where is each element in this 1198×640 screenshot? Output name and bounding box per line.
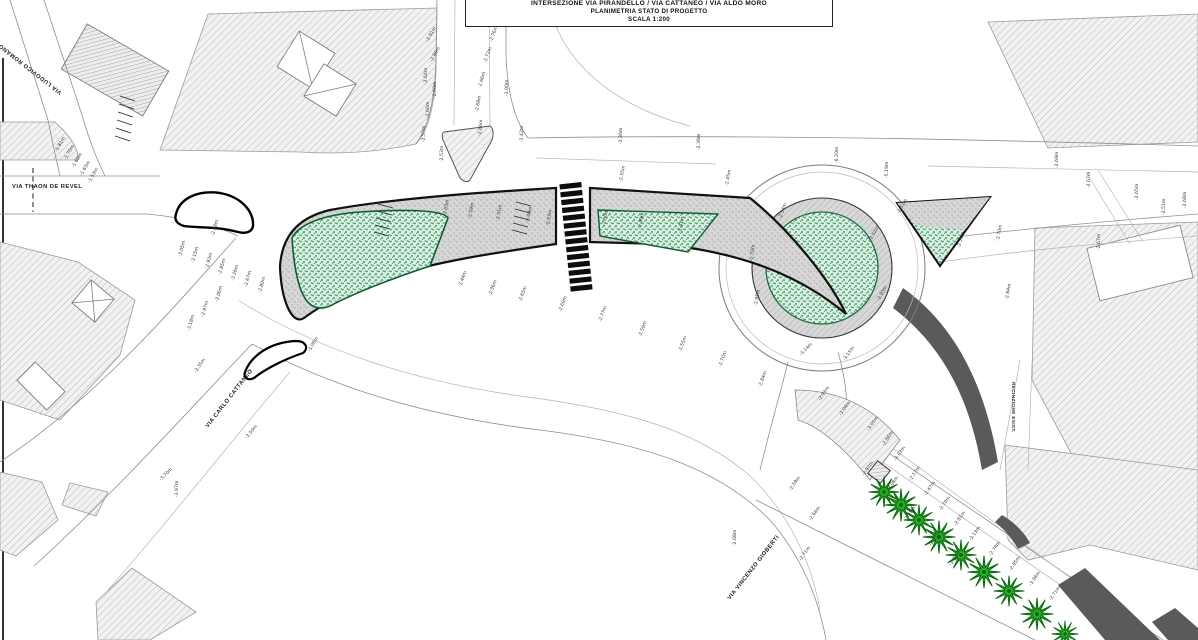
elevation-label: -2.71m	[798, 545, 813, 562]
elevation-label: -2.67m	[1096, 233, 1102, 250]
elevation-label: -2.84m	[1004, 283, 1013, 301]
wall-strip	[1152, 608, 1198, 640]
elevation-label: -2.55m	[618, 165, 627, 183]
elevation-label: -2.66m	[477, 71, 487, 89]
elevation-label: -3.26m	[230, 264, 240, 282]
island-teardrop-b	[245, 341, 307, 379]
elevation-label: -3.50m	[244, 423, 259, 440]
elevation-label: -3.18m	[186, 314, 196, 332]
elevation-label: -2.77m	[597, 305, 608, 323]
elevation-label: -2.95m	[1008, 555, 1023, 572]
elevation-label: -2.67m	[1086, 171, 1092, 188]
island-triangle-north	[442, 126, 493, 182]
elevation-label: -2.97m	[200, 300, 210, 318]
elevation-label: -2.65m	[517, 285, 528, 303]
elevation-label: -3.00m	[504, 79, 510, 96]
elevation-label: -2.65m	[1134, 183, 1140, 200]
zebra-stripe	[565, 237, 587, 244]
zebra-stripe	[561, 198, 583, 205]
elevation-label: -2.74m	[988, 540, 1003, 557]
elevation-label: -2.67m	[243, 270, 253, 288]
roundabout	[719, 165, 925, 371]
fence-label: RECINZIONE ESIST.	[1010, 382, 1016, 433]
elevation-label: -2.59m	[788, 475, 803, 492]
title-line-1: INTERSEZIONE VIA PIRANDELLO / VIA CATTAN…	[471, 0, 826, 8]
elevation-label: -2.76m	[488, 25, 499, 43]
elevation-label: -2.38m	[696, 133, 702, 150]
elevation-label: -2.59m	[637, 320, 648, 338]
road-line	[108, 372, 290, 590]
elevation-label: -2.66m	[425, 101, 431, 118]
road-line	[238, 300, 820, 610]
elevation-label: -2.60m	[432, 81, 438, 98]
elevation-label: -3.97m	[174, 480, 180, 497]
zebra-stripe	[564, 229, 586, 236]
wall-strip	[893, 288, 998, 470]
elevation-label: -3.15m	[842, 345, 857, 362]
zebra-stripe	[566, 245, 588, 252]
road-line	[252, 344, 826, 640]
tree-icon	[1052, 621, 1078, 640]
zebra-stripe	[567, 253, 589, 260]
elevation-label: -3.06m	[1028, 570, 1043, 587]
median-west-green	[292, 210, 448, 308]
road-line	[454, 0, 455, 125]
zebra-stripe	[562, 206, 584, 213]
elevation-label: -2.70m	[717, 350, 728, 368]
tree-icon	[1021, 598, 1053, 630]
road-line	[928, 166, 1198, 172]
elevation-label: -3.14m	[798, 341, 814, 357]
elevation-label: -1.53m	[87, 166, 101, 184]
title-block: INTERSEZIONE VIA PIRANDELLO / VIA CATTAN…	[465, 0, 833, 27]
elevation-label: -2.84m	[757, 370, 768, 388]
elevation-label: -1.63m	[79, 159, 93, 177]
elevation-label: -2.42m	[519, 125, 525, 142]
road-line	[536, 158, 716, 164]
elevation-label: -2.69m	[557, 295, 568, 313]
elevation-label: -2.36m	[618, 127, 624, 144]
elevation-label: -2.85m	[217, 258, 227, 276]
elevation-label: -2.64m	[423, 67, 429, 84]
elevation-label: -3.13m	[968, 525, 983, 542]
elevation-label: -2.36m	[487, 279, 498, 297]
parcel-sw-b	[62, 483, 108, 516]
elevation-label: -3.35m	[193, 357, 208, 374]
plan-drawing: -1.81m-1.70m-1.68m-1.63m-1.53m-2.91m-2.8…	[0, 0, 1198, 640]
zebra-stripe	[569, 276, 591, 283]
parcel-sw-c	[96, 568, 196, 640]
elevation-label: -2.93m	[204, 252, 214, 270]
tree-icon	[968, 556, 1000, 588]
plan-canvas: -1.81m-1.70m-1.68m-1.63m-1.53m-2.91m-2.8…	[0, 0, 1198, 640]
elevation-label: -5.19m	[884, 161, 890, 178]
elevation-label: -3.06m	[214, 285, 224, 303]
elevation-label: -3.03m	[893, 445, 908, 462]
elevation-label: -2.68m	[732, 529, 738, 546]
elevation-label: -3.70m	[158, 466, 174, 482]
zebra-stripe	[568, 261, 590, 268]
elevation-label: -2.66m	[808, 505, 823, 522]
zebra-stripe	[563, 213, 585, 220]
elevation-label: -2.72m	[482, 46, 493, 64]
elevation-label: -6.20m	[834, 146, 840, 163]
street-label: VIA THAON DE REVEL	[12, 184, 82, 190]
elevation-label: -2.44m	[457, 270, 468, 288]
elevation-label: -2.68m	[474, 95, 483, 113]
elevation-label: -2.70m	[938, 495, 953, 512]
zebra-stripe	[560, 190, 582, 197]
elevation-label: -2.57m	[421, 125, 427, 142]
street-label: VIA LUDOVICO ROMANO	[0, 42, 63, 95]
street-label: VIA CARLO CATTANEO	[205, 368, 255, 429]
elevation-label: -2.53m	[439, 145, 445, 162]
elevation-label: -3.15m	[190, 246, 200, 264]
parcel-bottom-left	[0, 242, 135, 420]
tree-icon	[994, 576, 1024, 606]
elevation-label: -2.80m	[257, 276, 267, 294]
elevation-label: -2.69m	[1054, 151, 1060, 168]
parcel-sw-a	[0, 472, 58, 556]
elevation-label: -3.05m	[177, 240, 187, 258]
zebra-stripe	[564, 221, 586, 228]
title-line-3: SCALA 1:200	[471, 16, 826, 24]
zebra-stripe	[568, 268, 590, 275]
road-line	[756, 500, 1035, 640]
elevation-label: -2.55m	[677, 335, 688, 353]
elevation-label: -2.51m	[1161, 198, 1167, 215]
building-top-right	[988, 14, 1198, 148]
elevation-label: -2.45m	[724, 169, 733, 187]
title-line-2: PLANIMETRIA STATO DI PROGETTO	[471, 8, 826, 16]
crosswalk-zebra	[559, 182, 592, 292]
zebra-stripe	[559, 182, 581, 189]
elevation-label: -2.68m	[1182, 191, 1188, 208]
zebra-stripe	[570, 284, 592, 291]
elevation-label: -2.71m	[1048, 585, 1063, 602]
